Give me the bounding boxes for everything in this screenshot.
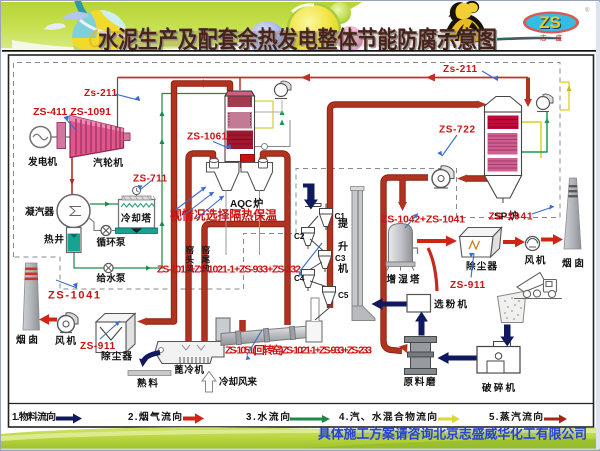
svg-text:破碎机: 破碎机 — [482, 382, 515, 394]
svg-text:热井: 热井 — [44, 234, 64, 246]
svg-text:1.物料流向: 1.物料流向 — [12, 410, 56, 423]
svg-text:5.蒸汽流向: 5.蒸汽流向 — [489, 410, 543, 423]
svg-text:冷却风来: 冷却风来 — [219, 376, 257, 388]
svg-text:4.汽、水混合物流向: 4.汽、水混合物流向 — [339, 410, 437, 423]
svg-text:风机: 风机 — [525, 255, 546, 267]
svg-text:2.烟气流向: 2.烟气流向 — [128, 410, 182, 423]
svg-text:升: 升 — [338, 240, 348, 253]
svg-text:ZS-1042+ZS-1041: ZS-1042+ZS-1041 — [381, 214, 465, 226]
svg-text:凝汽器: 凝汽器 — [25, 206, 54, 218]
svg-text:®: ® — [585, 7, 590, 14]
svg-text:ZS-911: ZS-911 — [80, 341, 115, 352]
svg-text:ZS-1011+ZS-1021-1+ZS-933+ZS-23: ZS-1011+ZS-1021-1+ZS-933+ZS-232 — [157, 264, 301, 276]
svg-text:ZS-1061: ZS-1061 — [187, 132, 227, 143]
svg-text:ZS-711: ZS-711 — [133, 174, 167, 185]
svg-text:除尘器: 除尘器 — [466, 261, 497, 273]
svg-text:给水泵: 给水泵 — [97, 273, 126, 285]
svg-text:冷却塔: 冷却塔 — [121, 213, 151, 225]
svg-text:蓖冷机: 蓖冷机 — [174, 364, 204, 376]
svg-text:增湿塔: 增湿塔 — [387, 274, 420, 286]
svg-text:C2: C2 — [294, 232, 305, 241]
svg-text:选粉机: 选粉机 — [434, 299, 467, 311]
svg-text:风机: 风机 — [55, 335, 76, 347]
svg-text:提: 提 — [338, 217, 349, 230]
svg-text:ZS-1041: ZS-1041 — [489, 212, 533, 223]
svg-text:发电机: 发电机 — [27, 156, 57, 168]
svg-text:ZS-911: ZS-911 — [450, 280, 485, 291]
svg-text:视情况选择隔热保温: 视情况选择隔热保温 — [170, 208, 277, 223]
svg-text:3.水流向: 3.水流向 — [246, 410, 290, 423]
svg-text:机: 机 — [338, 262, 348, 275]
svg-text:Zs-211: Zs-211 — [84, 88, 117, 99]
svg-text:汽轮机: 汽轮机 — [93, 157, 123, 169]
svg-text:C5: C5 — [338, 291, 349, 300]
svg-text:ZS: ZS — [539, 13, 561, 32]
svg-text:循环泵: 循环泵 — [97, 237, 126, 249]
svg-text:Zs-211: Zs-211 — [443, 64, 477, 75]
svg-text:除尘器: 除尘器 — [101, 351, 132, 363]
svg-text:熟料: 熟料 — [137, 378, 158, 390]
svg-text:原料磨: 原料磨 — [404, 376, 436, 388]
svg-text:ZS-411 ZS-1091: ZS-411 ZS-1091 — [33, 106, 111, 118]
svg-text:窑: 窑 — [186, 244, 195, 255]
svg-text:ZS-1041: ZS-1041 — [48, 290, 100, 302]
svg-text:ZS-722: ZS-722 — [439, 125, 475, 136]
svg-text:C3: C3 — [335, 254, 346, 263]
svg-text:窑: 窑 — [202, 244, 211, 255]
